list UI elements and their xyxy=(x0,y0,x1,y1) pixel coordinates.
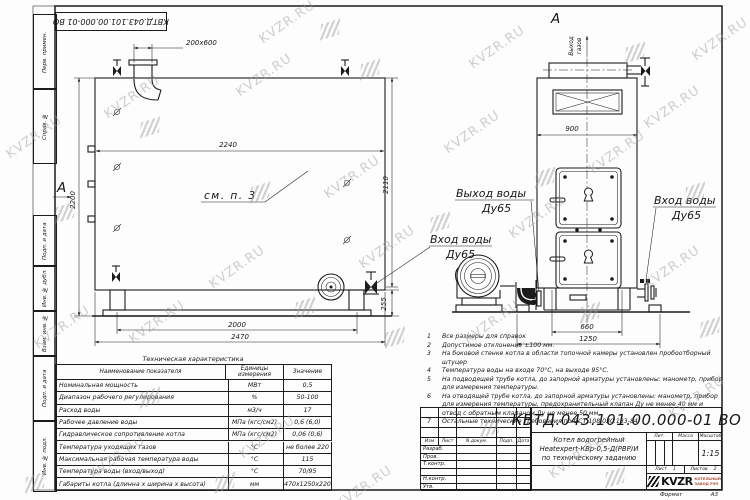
note-item: 1Все размеры для справок xyxy=(427,333,723,342)
front-view: А Выход газов 900 xyxy=(377,11,716,348)
frame-strip-label: Подп. и дата xyxy=(33,215,57,267)
revision-cell xyxy=(439,408,457,418)
tech-table-value-cell: МВт xyxy=(226,380,284,392)
kvzr-logo-text: KVZR xyxy=(661,475,692,488)
tech-table-header: Значение xyxy=(284,365,332,380)
format-label: Формат А3 xyxy=(656,490,722,500)
inlet-valve-side xyxy=(363,272,379,294)
revision-cell xyxy=(439,418,457,428)
note-item: 4Температура воды на входе 70°С, на выхо… xyxy=(427,367,723,376)
section-letter-top: А xyxy=(550,11,560,27)
sheet-cell: Лист1 xyxy=(647,466,685,474)
frame-strip-label: Подп. и дата xyxy=(33,355,57,422)
signature-cell xyxy=(457,454,497,462)
title-block: ИзмЛистN докум.Подп.ДатаРазраб.Пров.Т.ко… xyxy=(420,407,722,490)
sheets-cell: Листов2 xyxy=(685,466,722,474)
title-block-row-label: Пров. xyxy=(421,454,457,462)
revision-cell xyxy=(421,418,439,428)
title-block-row-label xyxy=(421,469,457,477)
revision-cell xyxy=(457,428,497,438)
revision-cell xyxy=(517,428,531,438)
water-in-right-label: Вход воды xyxy=(654,194,716,207)
tech-table-name-cell: Максимальная рабочая температура воды xyxy=(56,454,229,466)
water-out-dy: Ду65 xyxy=(481,202,511,215)
title-block-col-header: Подп. xyxy=(497,438,517,446)
dim-2110: 2110 xyxy=(382,176,390,194)
tech-table-value-cell: не более 220 xyxy=(284,442,332,454)
top-right-valve xyxy=(341,60,349,76)
title-block-col-header: N докум. xyxy=(457,438,497,446)
tech-table-name-cell: Температура уходящих газов xyxy=(56,442,229,454)
top-stamp: КВТД.043.101.00.000-01 ВО xyxy=(55,12,167,31)
product-line-1: Котел водогрейный xyxy=(532,436,646,445)
title-block-row-label: Утв. xyxy=(421,484,457,492)
tech-table-name-cell: Диапазон рабочего регулирования xyxy=(56,392,229,404)
revision-cell xyxy=(457,408,497,418)
signature-cell xyxy=(497,446,517,454)
dim-900: 900 xyxy=(565,125,579,133)
tech-table-value-cell: 50-100 xyxy=(284,392,332,404)
frame-strip-label: Перв. примен. xyxy=(33,14,57,90)
product-line-3: по техническому заданию xyxy=(532,454,646,463)
title-block-col-header: Изм xyxy=(421,438,439,446)
frame-strip-label: Справ. № xyxy=(33,88,57,164)
tech-table-value-cell: °С xyxy=(226,454,284,466)
top-stamp-number: КВТД.043.101.00.000-01 ВО xyxy=(53,17,169,26)
signature-cell xyxy=(457,476,497,484)
lit-label: Лит. xyxy=(647,433,673,441)
dim-2200: 2200 xyxy=(69,191,77,209)
note-item: 5На подводящей трубе котла, до запорной … xyxy=(427,376,723,393)
tech-table-value-cell: °С xyxy=(226,466,284,478)
note-number: 1 xyxy=(427,333,442,342)
date-cell xyxy=(517,454,531,462)
tech-table-name-cell: Гидравлическое сопротивление котла xyxy=(56,429,229,441)
date-cell xyxy=(517,476,531,484)
drawing-sheet: 200x600 2240 см. п. 3 2200 А 2110 xyxy=(0,0,750,500)
tech-table-value-cell: 115 xyxy=(284,454,332,466)
product-line-2: Heatexpert-КВр-0,5-Д(РВР)И xyxy=(532,445,646,454)
revision-cell xyxy=(421,408,439,418)
mass-label: Масса xyxy=(673,433,699,441)
flue-valve xyxy=(627,58,650,86)
tech-table-value-cell: 0,06 (0,6) xyxy=(284,429,332,441)
note-number: 3 xyxy=(427,350,442,367)
tech-table-name-cell: Габариты котла (длинна х ширина х высота… xyxy=(56,478,229,490)
title-block-col-header: Дата xyxy=(517,438,531,446)
tech-table-value-cell: 70/95 xyxy=(284,466,332,478)
signature-cell xyxy=(457,446,497,454)
tech-table-header: Единицы измерения xyxy=(226,365,284,380)
title-block-doc-number: КВТД.043.101.00.000-01 ВО xyxy=(531,408,721,433)
tech-table-header: Наименование показателя xyxy=(56,365,226,380)
tech-table-value-cell: 2470х1250х2200 xyxy=(284,478,332,490)
note-text: На боковой стенке котла в области топочн… xyxy=(442,350,723,367)
note-number: 4 xyxy=(427,367,442,376)
tech-table-value-cell: м3/ч xyxy=(226,405,284,417)
tech-table-value-cell: мм xyxy=(226,478,284,490)
note-item: 2Допустимое отклонение ±100 мм. xyxy=(427,342,723,351)
water-in-right-dy: Ду65 xyxy=(671,209,701,222)
frame-strip-label: Инв. № дубл. xyxy=(33,265,57,312)
signature-cell xyxy=(497,461,517,469)
scale-label: Масштаб xyxy=(699,433,722,441)
dim-660: 660 xyxy=(580,323,594,331)
tech-table-value-cell: МПа (кгс/см2) xyxy=(226,417,284,429)
revision-cell xyxy=(457,418,497,428)
see-note-label: см. п. 3 xyxy=(204,190,257,202)
tech-table-value-cell: 17 xyxy=(284,405,332,417)
title-block-col-header: Лист xyxy=(439,438,457,446)
tech-table-value-cell: % xyxy=(226,392,284,404)
revision-cell xyxy=(497,428,517,438)
title-block-empty-cell xyxy=(531,466,646,491)
mass-value xyxy=(673,441,699,466)
dim-2000: 2000 xyxy=(228,321,246,329)
tech-table-name-cell: Температура воды (вход/выход) xyxy=(56,466,229,478)
title-block-row-label: Разраб. xyxy=(421,446,457,454)
date-cell xyxy=(517,484,531,492)
date-cell xyxy=(517,461,531,469)
frame-strip-label: Инв. № подл. xyxy=(33,420,57,492)
lower-door xyxy=(550,228,621,288)
date-cell xyxy=(517,469,531,477)
dim-duct: 200x600 xyxy=(186,39,217,47)
water-in-left-dy: Ду65 xyxy=(445,248,475,261)
lit-cell-1 xyxy=(647,441,656,466)
fan xyxy=(456,255,502,312)
lit-cell-2 xyxy=(656,441,665,466)
signature-cell xyxy=(497,469,517,477)
tech-table-value-cell: °С xyxy=(226,442,284,454)
frame-strip-label: Взам. инв. № xyxy=(33,310,57,357)
water-inlet-flange xyxy=(637,279,656,301)
kvzr-logo-icon xyxy=(647,476,660,487)
note-text: Все размеры для справок xyxy=(442,333,723,342)
note-number: 5 xyxy=(427,376,442,393)
water-in-left-label: Вход воды xyxy=(430,233,492,246)
signature-cell xyxy=(457,469,497,477)
note-number: 2 xyxy=(427,342,442,351)
tech-table-value-cell: 0,5 xyxy=(284,380,332,392)
title-block-row-label: Т.контр. xyxy=(421,461,457,469)
tech-table-name-cell: Рабочее давление воды xyxy=(56,417,229,429)
revision-cell xyxy=(421,428,439,438)
lit-cell-3 xyxy=(665,441,673,466)
note-text: Температура воды на входе 70°С, на выход… xyxy=(442,367,723,376)
gas-out-label-1: Выход xyxy=(569,36,575,56)
dim-2470: 2470 xyxy=(231,333,249,341)
side-view: 200x600 2240 см. п. 3 2200 А 2110 xyxy=(53,39,399,346)
product-name: Котел водогрейный Heatexpert-КВр-0,5-Д(Р… xyxy=(531,433,646,466)
note-item: 3На боковой стенке котла в области топоч… xyxy=(427,350,723,367)
top-left-valve xyxy=(113,60,121,76)
tech-table-name-cell: Расход воды xyxy=(56,405,229,417)
tech-table-name-cell: Номинальная мощность xyxy=(56,380,229,392)
frame-left-strip: Перв. примен.Справ. №Подп. и датаИнв. № … xyxy=(0,0,60,500)
note-text: Допустимое отклонение ±100 мм. xyxy=(442,342,723,351)
water-out-label: Выход воды xyxy=(456,187,526,200)
gas-out-label-2: газов xyxy=(577,37,583,54)
dim-255: 255 xyxy=(380,297,388,311)
tech-table-value-cell: МПа (кгс/см2) xyxy=(226,429,284,441)
tech-table: Техническая характеристика Наименование … xyxy=(55,353,331,490)
signature-cell xyxy=(457,484,497,492)
kvzr-logo: KVZR КОТЕЛЬНЫЙ ЗАВОД РЭП xyxy=(646,474,722,489)
signature-cell xyxy=(497,476,517,484)
note-text: На подводящей трубе котла, до запорной а… xyxy=(442,376,723,393)
drain-valve xyxy=(112,266,120,282)
scale-value: 1:15 xyxy=(699,441,722,466)
upper-door xyxy=(550,168,621,228)
tech-table-title: Техническая характеристика xyxy=(55,353,331,364)
signature-cell xyxy=(497,484,517,492)
burner-flange xyxy=(318,274,344,300)
title-block-row-label: Н.контр. xyxy=(421,476,457,484)
date-cell xyxy=(517,446,531,454)
signature-cell xyxy=(457,461,497,469)
signature-cell xyxy=(497,454,517,462)
revision-cell xyxy=(439,428,457,438)
dim-2240: 2240 xyxy=(219,141,237,149)
kvzr-logo-subtext: КОТЕЛЬНЫЙ ЗАВОД РЭП xyxy=(695,477,721,486)
tech-table-value-cell: 0,6 (6,0) xyxy=(284,417,332,429)
circle-marks xyxy=(113,108,351,244)
